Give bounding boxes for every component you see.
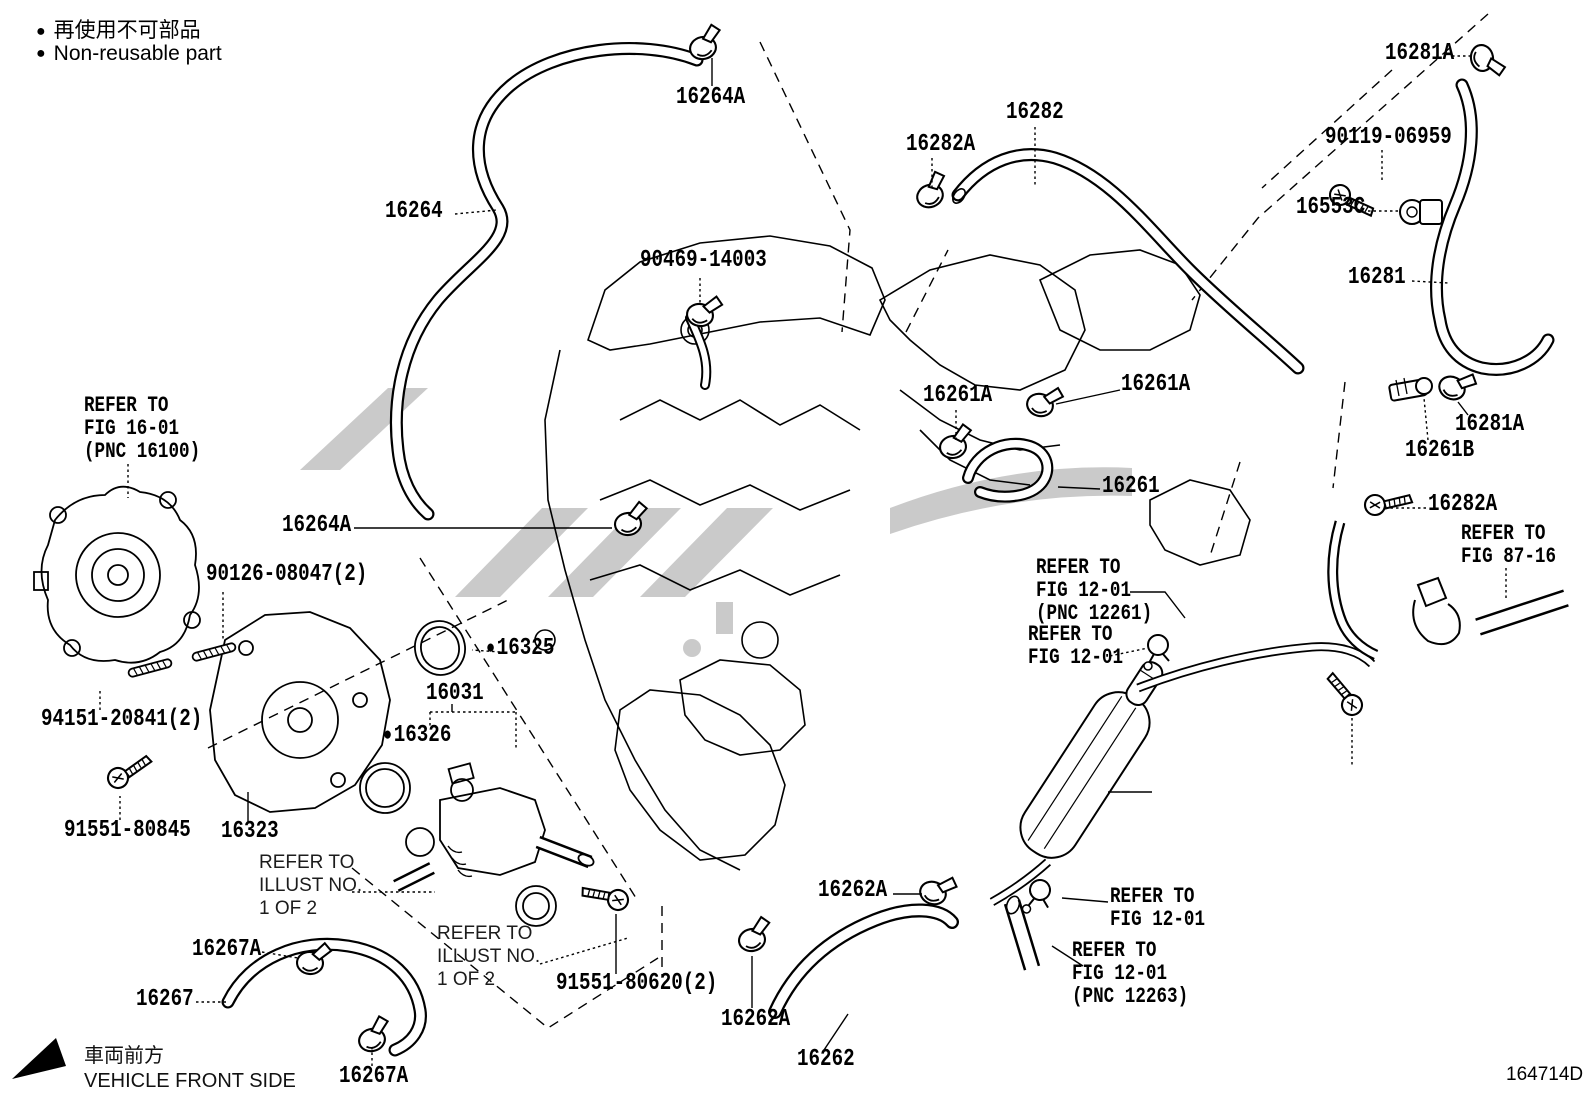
non-reusable-dot-icon: ● xyxy=(36,45,46,62)
label-16282a-mid: 16282A xyxy=(1428,493,1497,517)
label-16261a-left-text: 16261A xyxy=(923,382,992,409)
label-16264: 16264 xyxy=(385,200,443,224)
hose-16281 xyxy=(1436,85,1548,369)
legend-text-jp: 再使用不可部品 xyxy=(54,20,201,43)
label-16264a-mid: 16264A xyxy=(282,514,351,538)
note-refer-fig-12-01-b-text: REFER TO FIG 12-01 xyxy=(1028,622,1123,670)
note-refer-fig-16-01-text: REFER TO FIG 16-01 (PNC 16100) xyxy=(84,393,200,464)
label-16326: ●16326 xyxy=(383,724,451,748)
non-reusable-dot-icon: ● xyxy=(36,23,46,40)
legend: ● 再使用不可部品 ● Non-reusable part xyxy=(36,20,222,65)
label-90126-08047-text: 90126-08047(2) xyxy=(206,561,367,588)
label-16282a-top: 16282A xyxy=(906,133,975,157)
label-91551-80845: 91551-80845 xyxy=(64,819,191,843)
label-16281a-mid: 16281A xyxy=(1455,413,1524,437)
label-16267-text: 16267 xyxy=(136,986,194,1013)
bracket-16553c xyxy=(1400,200,1442,224)
diagram-linework xyxy=(0,0,1592,1099)
water-outlet-assembly xyxy=(396,763,595,926)
label-16281a-mid-text: 16281A xyxy=(1455,411,1524,438)
bolt-91551-80845 xyxy=(105,755,156,791)
engine-outline xyxy=(535,236,1250,870)
stud-94151-20841 xyxy=(128,658,173,677)
note-refer-fig-12-01-c: REFER TO FIG 12-01 xyxy=(1110,885,1205,931)
label-16281a-top-text: 16281A xyxy=(1385,40,1454,67)
label-16267: 16267 xyxy=(136,988,194,1012)
note-refer-fig-87-16-upper: REFER TO FIG 87-16 xyxy=(1461,522,1556,568)
label-16267a-2-text: 16267A xyxy=(339,1063,408,1090)
bolt-91551-80620 xyxy=(580,875,631,914)
legend-row-en: ● Non-reusable part xyxy=(36,43,222,66)
label-16261: 16261 xyxy=(1102,475,1160,499)
label-16262-text: 16262 xyxy=(797,1046,855,1073)
label-16553c-text: 16553C xyxy=(1296,194,1365,221)
label-16282-text: 16282 xyxy=(1006,99,1064,126)
note-refer-illust-1: REFER TO ILLUST NO. 1 OF 2 xyxy=(259,852,362,920)
clamp-16262a-lower xyxy=(736,916,774,953)
label-91551-80620: 91551-80620(2) xyxy=(556,972,717,996)
label-16261a-right-text: 16261A xyxy=(1121,371,1190,398)
label-94151-20841: 94151-20841(2) xyxy=(41,708,202,732)
legend-row-jp: ● 再使用不可部品 xyxy=(36,20,222,43)
label-16323-text: 16323 xyxy=(221,818,279,845)
note-refer-illust-2-text: REFER TO ILLUST NO. 1 OF 2 xyxy=(437,923,540,990)
label-16031-text: 16031 xyxy=(426,680,484,707)
label-16264a-top-text: 16264A xyxy=(676,84,745,111)
note-refer-fig-87-16-upper-text: REFER TO FIG 87-16 xyxy=(1461,521,1556,569)
vehicle-front-note: 車両前方 VEHICLE FRONT SIDE xyxy=(84,1044,296,1094)
screw-16282a-mid xyxy=(1365,494,1413,517)
label-16323: 16323 xyxy=(221,820,279,844)
label-16262: 16262 xyxy=(797,1048,855,1072)
note-refer-fig-12-01-c-text: REFER TO FIG 12-01 xyxy=(1110,884,1205,932)
label-16261b-text: 16261B xyxy=(1405,437,1474,464)
label-16261b: 16261B xyxy=(1405,439,1474,463)
label-90469-14003: 90469-14003 xyxy=(640,249,767,273)
non-reusable-dot-icon: ● xyxy=(383,724,392,746)
note-refer-fig-16-01: REFER TO FIG 16-01 (PNC 16100) xyxy=(84,394,200,463)
construction-lines xyxy=(208,14,1488,1028)
clamp-16281a-top xyxy=(1469,42,1506,80)
note-refer-fig-12-01-pnc12261-text: REFER TO FIG 12-01 (PNC 12261) xyxy=(1036,555,1152,626)
label-16326-text: 16326 xyxy=(394,722,452,749)
label-91551-80620-text: 91551-80620(2) xyxy=(556,970,717,997)
note-refer-fig-12-01-pnc12263-text: REFER TO FIG 12-01 (PNC 12263) xyxy=(1072,938,1188,1009)
water-pump xyxy=(34,487,200,663)
clamp-16261a-right xyxy=(1025,381,1065,420)
label-90119-06959-text: 90119-06959 xyxy=(1325,124,1452,151)
clamp-16267a-2 xyxy=(354,1015,394,1054)
label-16267a-1: 16267A xyxy=(192,938,261,962)
vehicle-front-en: VEHICLE FRONT SIDE xyxy=(84,1069,296,1094)
figure-number: 164714D xyxy=(1506,1064,1583,1086)
label-16031: 16031 xyxy=(426,682,484,706)
watermark xyxy=(300,388,1132,657)
label-16281a-top: 16281A xyxy=(1385,42,1454,66)
vehicle-front-jp: 車両前方 xyxy=(84,1044,296,1069)
label-90469-14003-text: 90469-14003 xyxy=(640,247,767,274)
hose-16282 xyxy=(950,155,1298,368)
label-16281-text: 16281 xyxy=(1348,264,1406,291)
hose-90469-stub xyxy=(690,318,706,385)
clamp-90469-14003 xyxy=(685,292,723,329)
clamp-16264a-top xyxy=(686,23,725,61)
label-16262a-upper-text: 16262A xyxy=(818,877,887,904)
label-16261a-right: 16261A xyxy=(1121,373,1190,397)
legend-text-en: Non-reusable part xyxy=(54,43,222,66)
label-16282a-top-text: 16282A xyxy=(906,131,975,158)
label-16282: 16282 xyxy=(1006,101,1064,125)
label-16553c: 16553C xyxy=(1296,196,1365,220)
label-16267a-2: 16267A xyxy=(339,1065,408,1089)
label-16281: 16281 xyxy=(1348,266,1406,290)
label-16264-text: 16264 xyxy=(385,198,443,225)
note-refer-fig-12-01-pnc12263: REFER TO FIG 12-01 (PNC 12263) xyxy=(1072,939,1188,1008)
label-16325-text: 16325 xyxy=(497,635,555,662)
label-16325: ●16325 xyxy=(486,637,554,661)
label-16262a-lower-text: 16262A xyxy=(721,1006,790,1033)
label-16262a-lower: 16262A xyxy=(721,1008,790,1032)
note-refer-illust-2: REFER TO ILLUST NO. 1 OF 2 xyxy=(437,923,540,991)
note-refer-fig-12-01-pnc12261: REFER TO FIG 12-01 (PNC 12261) xyxy=(1036,556,1152,625)
label-16264a-top: 16264A xyxy=(676,86,745,110)
label-16261-text: 16261 xyxy=(1102,473,1160,500)
fitting-16261b xyxy=(1389,378,1432,401)
label-90119-06959: 90119-06959 xyxy=(1325,126,1452,150)
vehicle-front-arrow-icon xyxy=(12,1038,66,1079)
label-16264a-mid-text: 16264A xyxy=(282,512,351,539)
note-refer-illust-1-text: REFER TO ILLUST NO. 1 OF 2 xyxy=(259,852,362,919)
non-reusable-dot-icon: ● xyxy=(486,637,495,659)
label-16262a-upper: 16262A xyxy=(818,879,887,903)
label-94151-20841-text: 94151-20841(2) xyxy=(41,706,202,733)
bolt-91671-80614 xyxy=(1326,667,1365,718)
label-16267a-1-text: 16267A xyxy=(192,936,261,963)
hose-16262 xyxy=(775,910,952,1012)
parts-diagram-page: ● 再使用不可部品 ● Non-reusable part 16264A1628… xyxy=(0,0,1592,1099)
label-16261a-left: 16261A xyxy=(923,384,992,408)
label-91551-80845-text: 91551-80845 xyxy=(64,817,191,844)
label-90126-08047: 90126-08047(2) xyxy=(206,563,367,587)
label-16282a-mid-text: 16282A xyxy=(1428,491,1497,518)
note-refer-fig-12-01-b: REFER TO FIG 12-01 xyxy=(1028,623,1123,669)
stud-90126-08047 xyxy=(192,642,237,661)
